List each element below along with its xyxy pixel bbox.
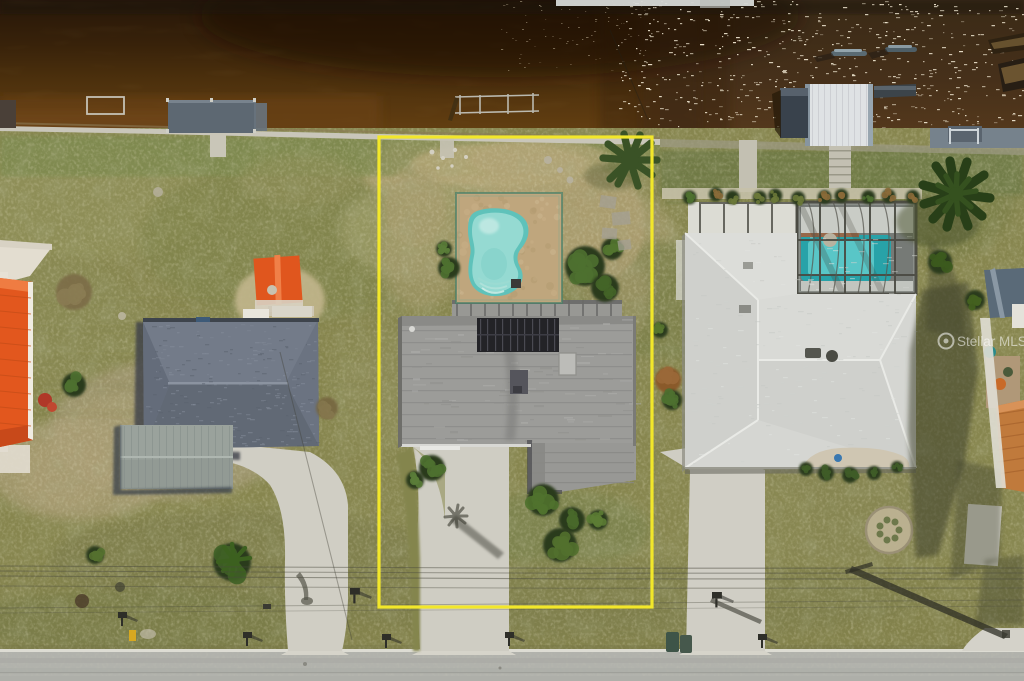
svg-text:Stellar MLS: Stellar MLS <box>957 334 1024 349</box>
